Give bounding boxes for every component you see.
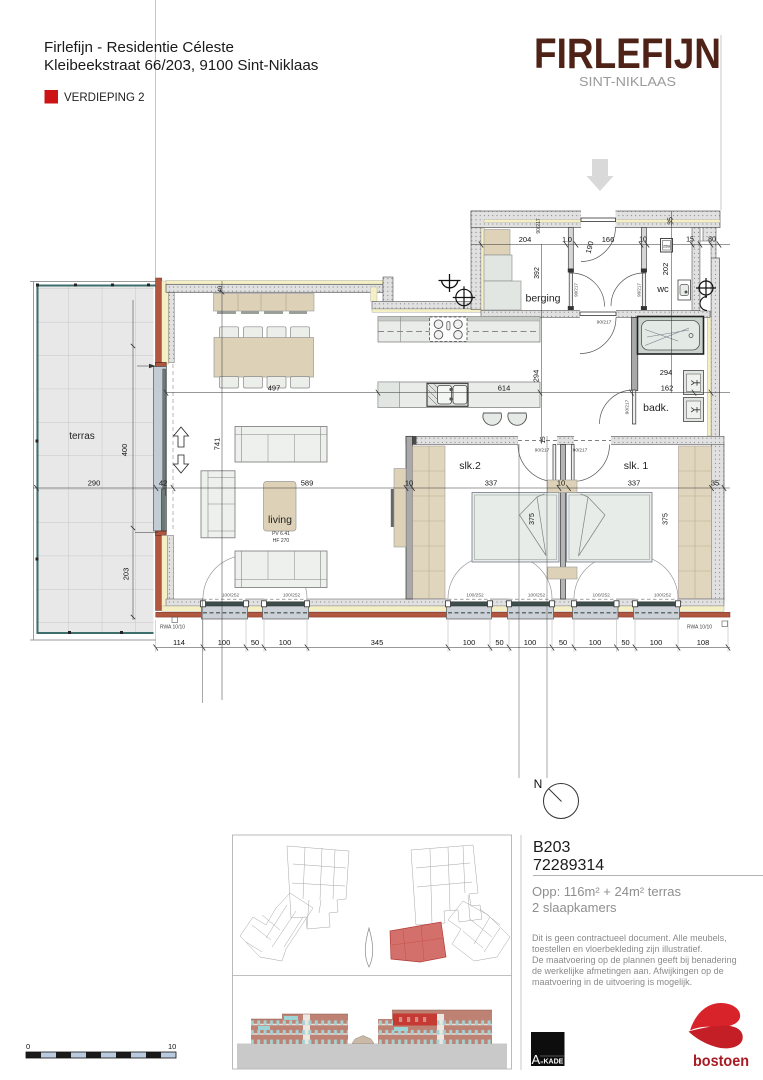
svg-text:SINT-NIKLAAS: SINT-NIKLAAS	[579, 74, 676, 89]
svg-text:Firlefijn - Residentie Céleste: Firlefijn - Residentie Céleste	[44, 39, 234, 56]
svg-text:100: 100	[279, 638, 292, 647]
svg-text:2 slaapkamers: 2 slaapkamers	[532, 900, 617, 915]
svg-text:slk.2: slk.2	[459, 460, 481, 472]
svg-text:294: 294	[532, 370, 541, 383]
svg-text:10: 10	[639, 237, 647, 244]
svg-text:VERDIEPING 2: VERDIEPING 2	[64, 92, 145, 104]
svg-text:15: 15	[686, 237, 694, 244]
svg-text:RWA 10/10: RWA 10/10	[160, 625, 185, 631]
svg-text:HF 270: HF 270	[273, 538, 290, 544]
svg-text:90/217: 90/217	[535, 448, 550, 454]
svg-text:RWA 10/10: RWA 10/10	[687, 625, 712, 631]
svg-text:190: 190	[584, 240, 596, 254]
svg-text:392: 392	[534, 267, 541, 279]
svg-text:toestellen en vloerbekleding z: toestellen en vloerbekleding zijn illust…	[532, 944, 703, 954]
svg-text:375: 375	[529, 513, 536, 525]
svg-text:B203: B203	[533, 839, 570, 856]
svg-text:0: 0	[26, 1042, 30, 1051]
svg-text:42: 42	[159, 479, 167, 488]
svg-text:badk.: badk.	[643, 402, 669, 414]
svg-text:204: 204	[519, 235, 532, 244]
svg-text:50: 50	[495, 638, 503, 647]
svg-text:90/217: 90/217	[625, 399, 631, 414]
svg-text:100/252: 100/252	[654, 593, 672, 599]
svg-text:KADE: KADE	[544, 1059, 564, 1066]
svg-text:maatvoering in de uitvoering i: maatvoering in de uitvoering is mogelijk…	[532, 977, 692, 987]
svg-text:497: 497	[268, 384, 281, 393]
svg-text:345: 345	[371, 638, 384, 647]
svg-text:Dit is geen contractueel docum: Dit is geen contractueel document. Alle …	[532, 933, 727, 943]
svg-text:15: 15	[540, 436, 547, 444]
svg-text:100/252: 100/252	[222, 593, 240, 599]
svg-text:bostoen: bostoen	[693, 1053, 749, 1070]
svg-text:FIRLEFIJN: FIRLEFIJN	[534, 30, 721, 78]
svg-text:wc: wc	[656, 284, 669, 295]
svg-text:berging: berging	[525, 293, 560, 305]
svg-text:25B: 25B	[663, 244, 670, 249]
svg-text:De maatvoering op de plannen g: De maatvoering op de plannen geeft bij b…	[532, 955, 737, 965]
svg-text:N: N	[534, 777, 543, 791]
svg-text:100/252: 100/252	[283, 593, 301, 599]
svg-text:10: 10	[168, 1042, 176, 1051]
svg-text:50: 50	[251, 638, 259, 647]
svg-text:166: 166	[602, 235, 615, 244]
svg-text:Opp: 116m² + 24m² terras: Opp: 116m² + 24m² terras	[532, 884, 681, 899]
svg-text:114: 114	[173, 638, 185, 647]
svg-text:100: 100	[589, 638, 602, 647]
svg-text:375: 375	[663, 513, 670, 525]
svg-text:terras: terras	[69, 431, 95, 442]
svg-text:Kleibeekstraat 66/203, 9100 Si: Kleibeekstraat 66/203, 9100 Sint-Niklaas	[44, 57, 319, 74]
svg-text:100: 100	[463, 638, 476, 647]
svg-text:35: 35	[668, 217, 675, 225]
svg-text:PV 6.41: PV 6.41	[272, 531, 290, 537]
svg-text:slk. 1: slk. 1	[624, 460, 649, 472]
svg-text:10: 10	[557, 479, 565, 488]
svg-text:100: 100	[650, 638, 663, 647]
svg-text:100/252: 100/252	[528, 593, 546, 599]
svg-text:202: 202	[661, 263, 670, 276]
svg-text:90/217: 90/217	[574, 283, 579, 297]
svg-text:100/252: 100/252	[466, 593, 484, 599]
svg-text:10: 10	[405, 479, 413, 488]
svg-text:203: 203	[122, 568, 131, 581]
svg-text:35: 35	[711, 479, 719, 488]
svg-text:90/217: 90/217	[637, 283, 642, 297]
svg-text:90/217: 90/217	[536, 218, 542, 234]
svg-text:de werkelijke afmetingen aan.: de werkelijke afmetingen aan. Afwijkinge…	[532, 966, 724, 976]
svg-text:290: 290	[88, 479, 101, 488]
svg-text:108: 108	[697, 638, 710, 647]
svg-text:100/252: 100/252	[593, 593, 611, 599]
svg-text:90/217: 90/217	[573, 448, 588, 454]
svg-text:741: 741	[213, 438, 222, 451]
svg-text:A: A	[532, 1052, 541, 1067]
svg-text:90/217: 90/217	[597, 320, 612, 326]
svg-text:72289314: 72289314	[533, 857, 604, 874]
svg-text:100: 100	[524, 638, 537, 647]
svg-text:80: 80	[708, 237, 716, 244]
svg-text:1.0: 1.0	[562, 237, 572, 244]
svg-text:400: 400	[120, 444, 129, 457]
svg-text:337: 337	[628, 479, 641, 488]
svg-text:living: living	[268, 514, 292, 526]
svg-text:100: 100	[218, 638, 231, 647]
svg-text:294: 294	[660, 368, 673, 377]
svg-text:614: 614	[498, 384, 511, 393]
svg-text:589: 589	[301, 479, 314, 488]
svg-text:337: 337	[485, 479, 498, 488]
svg-text:50: 50	[621, 638, 629, 647]
svg-text:50: 50	[559, 638, 567, 647]
